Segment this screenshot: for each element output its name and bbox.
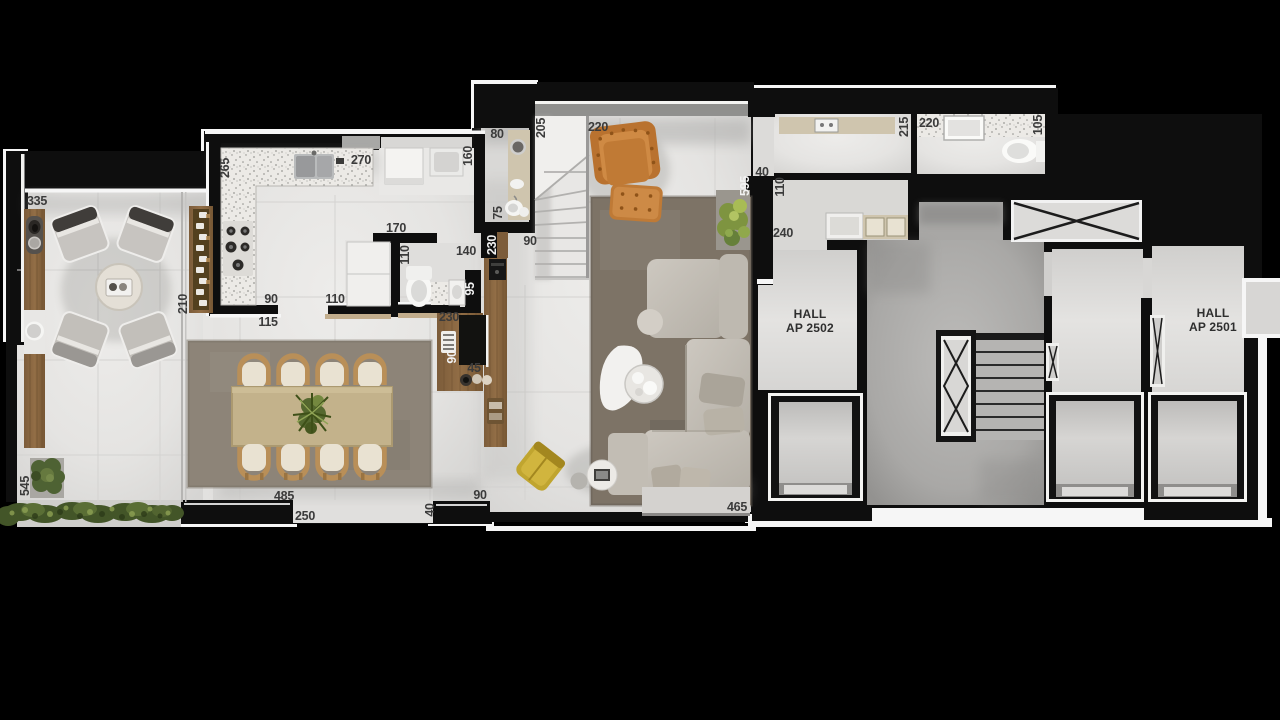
svg-text:80: 80: [490, 127, 504, 141]
svg-text:75: 75: [491, 206, 505, 220]
svg-text:90: 90: [473, 488, 487, 502]
svg-text:90: 90: [264, 292, 278, 306]
svg-text:45: 45: [467, 361, 481, 375]
svg-text:220: 220: [588, 120, 608, 134]
svg-text:595: 595: [738, 176, 752, 196]
svg-text:210: 210: [176, 294, 190, 314]
svg-text:465: 465: [727, 500, 747, 514]
svg-text:230: 230: [485, 235, 499, 255]
svg-text:335: 335: [27, 194, 47, 208]
svg-text:485: 485: [274, 489, 294, 503]
svg-text:HALL: HALL: [1197, 306, 1230, 320]
svg-text:90: 90: [445, 350, 459, 364]
svg-text:110: 110: [398, 245, 412, 265]
svg-text:170: 170: [386, 221, 406, 235]
svg-text:265: 265: [218, 158, 232, 178]
svg-text:215: 215: [897, 117, 911, 137]
svg-text:545: 545: [18, 476, 32, 496]
svg-text:110: 110: [325, 292, 345, 306]
svg-text:AP 2501: AP 2501: [1189, 320, 1237, 334]
svg-text:140: 140: [456, 244, 476, 258]
svg-text:270: 270: [351, 153, 371, 167]
svg-text:110: 110: [773, 177, 787, 197]
svg-text:220: 220: [919, 116, 939, 130]
svg-text:205: 205: [534, 118, 548, 138]
svg-text:40: 40: [423, 503, 437, 517]
svg-text:115: 115: [258, 315, 278, 329]
svg-text:95: 95: [463, 282, 477, 296]
svg-text:HALL: HALL: [794, 307, 827, 321]
svg-text:90: 90: [523, 234, 537, 248]
svg-text:160: 160: [461, 146, 475, 166]
svg-text:40: 40: [755, 165, 769, 179]
svg-text:240: 240: [773, 226, 793, 240]
svg-text:230: 230: [439, 310, 459, 324]
svg-text:AP 2502: AP 2502: [786, 321, 834, 335]
svg-text:250: 250: [295, 509, 315, 523]
svg-text:105: 105: [1031, 115, 1045, 135]
